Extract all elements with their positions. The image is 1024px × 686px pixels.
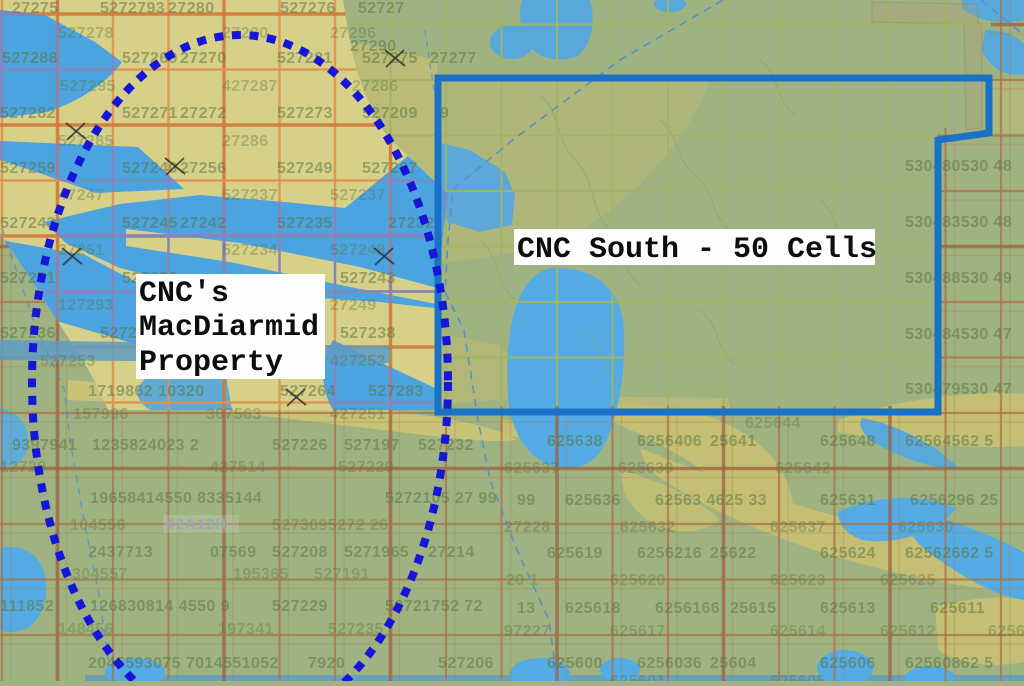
svg-text:197341: 197341 — [218, 621, 274, 638]
svg-text:625605: 625605 — [770, 673, 826, 681]
svg-text:625642: 625642 — [775, 460, 831, 477]
svg-text:27280: 27280 — [168, 0, 215, 17]
svg-text:304557: 304557 — [72, 566, 128, 583]
svg-text:427514: 427514 — [210, 459, 266, 476]
svg-text:5273095272 26: 5273095272 26 — [272, 517, 388, 534]
svg-text:625624: 625624 — [820, 545, 876, 562]
svg-text:427253: 427253 — [330, 353, 386, 370]
svg-text:1719862: 1719862 — [88, 383, 153, 400]
svg-text:625644: 625644 — [745, 415, 801, 432]
svg-text:527267: 527267 — [362, 160, 418, 177]
svg-text:530488530 49: 530488530 49 — [905, 270, 1012, 287]
svg-text:527229: 527229 — [338, 459, 394, 476]
svg-text:52727: 52727 — [358, 0, 405, 17]
svg-text:625614: 625614 — [770, 623, 826, 640]
svg-text:27249: 27249 — [330, 297, 377, 314]
svg-text:6256216: 6256216 — [637, 545, 702, 562]
svg-text:27228: 27228 — [504, 519, 551, 536]
svg-text:527273: 527273 — [277, 105, 333, 122]
svg-text:27272: 27272 — [180, 105, 227, 122]
svg-text:527226: 527226 — [272, 437, 328, 454]
svg-text:62562662 5: 62562662 5 — [905, 545, 994, 562]
svg-text:625620: 625620 — [610, 572, 666, 589]
svg-text:527295: 527295 — [60, 78, 116, 95]
svg-text:157996: 157996 — [73, 406, 129, 423]
svg-text:6256166: 6256166 — [655, 600, 720, 617]
svg-text:6256: 6256 — [988, 623, 1024, 640]
svg-text:CNC South - 50 Cells: CNC South - 50 Cells — [517, 233, 877, 267]
svg-text:27286: 27286 — [222, 133, 269, 150]
svg-text:625630: 625630 — [898, 519, 954, 536]
svg-text:625637: 625637 — [770, 519, 826, 536]
svg-text:25604: 25604 — [710, 655, 757, 672]
svg-text:27270: 27270 — [180, 50, 227, 67]
svg-text:527206: 527206 — [438, 655, 494, 672]
svg-text:530479530 47: 530479530 47 — [905, 381, 1012, 398]
svg-text:104556: 104556 — [70, 517, 126, 534]
svg-text:530484530 47: 530484530 47 — [905, 326, 1012, 343]
svg-text:625632: 625632 — [620, 519, 676, 536]
svg-text:527235: 527235 — [277, 215, 333, 232]
svg-text:527191: 527191 — [314, 566, 370, 583]
svg-text:527237: 527237 — [222, 187, 278, 204]
svg-text:10320: 10320 — [158, 383, 205, 400]
svg-text:MacDiarmid: MacDiarmid — [139, 311, 319, 345]
svg-text:27275: 27275 — [12, 0, 59, 17]
svg-text:195365: 195365 — [233, 566, 289, 583]
svg-text:527276: 527276 — [280, 0, 336, 17]
svg-text:27256: 27256 — [180, 160, 227, 177]
svg-text:126830814 4550 9: 126830814 4550 9 — [90, 598, 230, 615]
svg-text:527236: 527236 — [0, 325, 56, 342]
svg-text:27277: 27277 — [430, 50, 477, 67]
svg-text:625639: 625639 — [618, 460, 674, 477]
svg-text:527271: 527271 — [122, 105, 178, 122]
svg-text:625638: 625638 — [547, 433, 603, 450]
svg-text:527235: 527235 — [328, 621, 384, 638]
svg-text:19658414550 8335144: 19658414550 8335144 — [90, 490, 262, 507]
svg-text:625601: 625601 — [610, 673, 666, 681]
svg-text:625612: 625612 — [880, 623, 936, 640]
svg-text:25641: 25641 — [710, 433, 757, 450]
svg-text:527208: 527208 — [272, 544, 328, 561]
svg-text:625617: 625617 — [610, 623, 666, 640]
svg-text:527282: 527282 — [0, 105, 56, 122]
svg-text:527249: 527249 — [277, 160, 333, 177]
svg-text:527288: 527288 — [2, 50, 58, 67]
svg-text:625606: 625606 — [820, 655, 876, 672]
svg-text:530483530 48: 530483530 48 — [905, 214, 1012, 231]
svg-text:6256406: 6256406 — [637, 433, 702, 450]
svg-text:625618: 625618 — [565, 600, 621, 617]
svg-text:427251: 427251 — [330, 406, 386, 423]
svg-text:625613: 625613 — [820, 600, 876, 617]
svg-text:97227: 97227 — [504, 623, 551, 640]
svg-text:527197: 527197 — [344, 437, 400, 454]
svg-text:527237: 527237 — [330, 187, 386, 204]
svg-text:27214: 27214 — [428, 544, 475, 561]
svg-text:42A12H: 42A12H — [166, 516, 227, 533]
svg-text:6256036: 6256036 — [637, 655, 702, 672]
svg-text:527283: 527283 — [368, 383, 424, 400]
svg-text:625637: 625637 — [504, 460, 560, 477]
svg-text:CNC's: CNC's — [139, 277, 229, 311]
svg-text:25622: 25622 — [710, 545, 757, 562]
svg-text:27280: 27280 — [222, 25, 269, 42]
svg-text:527229: 527229 — [272, 598, 328, 615]
svg-text:Property: Property — [139, 346, 283, 380]
svg-text:62560862 5: 62560862 5 — [905, 655, 994, 672]
svg-text:111852: 111852 — [0, 598, 54, 615]
svg-text:6256296 25: 6256296 25 — [910, 492, 999, 509]
svg-text:13: 13 — [517, 600, 536, 617]
svg-text:527243: 527243 — [340, 270, 396, 287]
svg-text:530480530 48: 530480530 48 — [905, 158, 1012, 175]
svg-text:27242: 27242 — [180, 215, 227, 232]
svg-text:527278: 527278 — [58, 25, 114, 42]
svg-text:7920: 7920 — [308, 655, 345, 672]
svg-text:07569: 07569 — [210, 544, 257, 561]
svg-text:62563 4625 33: 62563 4625 33 — [655, 492, 767, 509]
svg-text:2437713: 2437713 — [88, 544, 153, 561]
svg-text:5272793: 5272793 — [100, 0, 165, 17]
svg-text:99: 99 — [517, 492, 536, 509]
svg-text:527238: 527238 — [340, 325, 396, 342]
svg-text:625636: 625636 — [565, 492, 621, 509]
svg-text:62564562 5: 62564562 5 — [905, 433, 994, 450]
svg-text:625625: 625625 — [880, 572, 936, 589]
svg-text:127293: 127293 — [58, 297, 114, 314]
svg-text:527245: 527245 — [122, 215, 178, 232]
svg-text:625619: 625619 — [547, 545, 603, 562]
svg-text:527259: 527259 — [0, 160, 56, 177]
svg-text:527234: 527234 — [222, 242, 278, 259]
svg-text:307563: 307563 — [206, 406, 262, 423]
svg-text:625648: 625648 — [820, 433, 876, 450]
svg-text:625611: 625611 — [930, 600, 985, 617]
svg-text:427287: 427287 — [222, 78, 278, 95]
svg-text:527243: 527243 — [0, 215, 56, 232]
svg-text:1235824023 2: 1235824023 2 — [92, 437, 199, 454]
svg-text:5271965: 5271965 — [344, 544, 409, 561]
svg-text:25615: 25615 — [730, 600, 777, 617]
svg-text:527251: 527251 — [0, 270, 56, 287]
svg-text:625631: 625631 — [820, 492, 876, 509]
svg-text:9397941: 9397941 — [12, 437, 77, 454]
svg-text:625623: 625623 — [770, 572, 826, 589]
